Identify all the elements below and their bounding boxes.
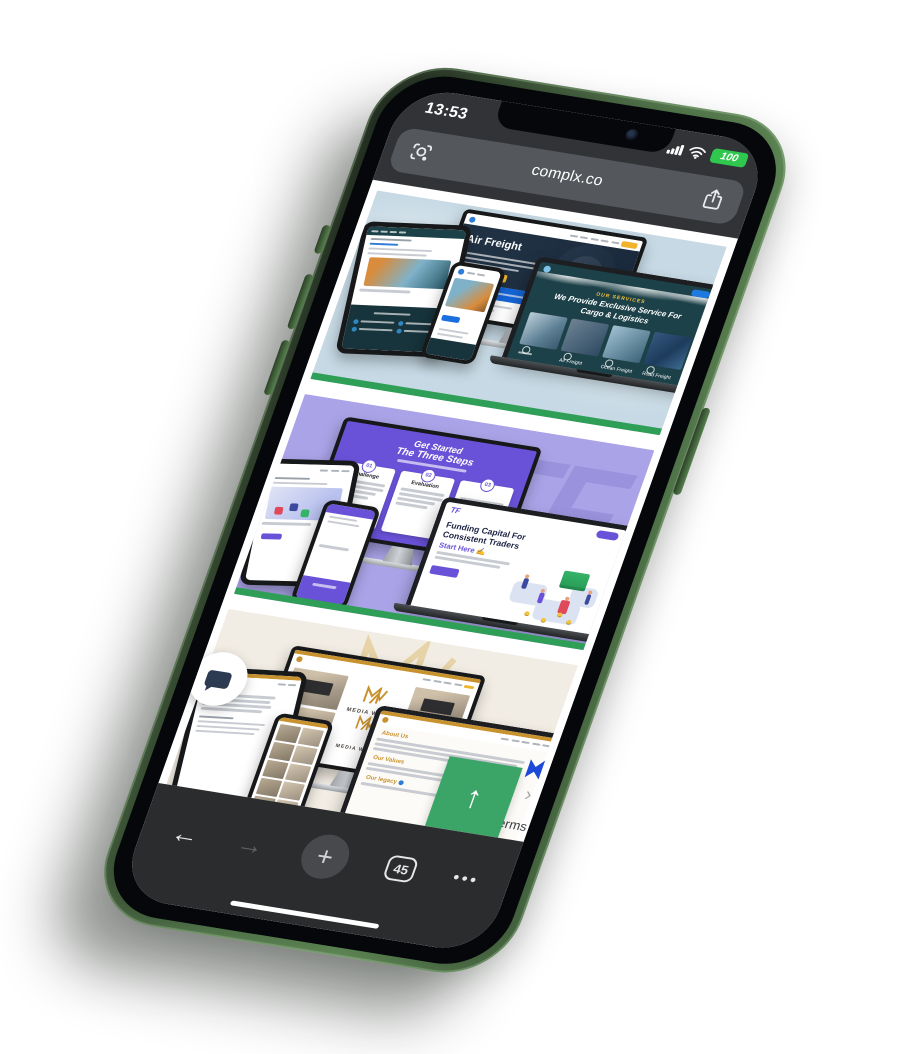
forward-button[interactable]: → [232, 828, 269, 862]
front-camera [624, 128, 640, 141]
share-icon[interactable] [692, 186, 734, 214]
stage: 13:53 100 [0, 0, 912, 1054]
cellular-signal-icon [666, 142, 685, 156]
web-content: Air Freight [158, 180, 738, 842]
portfolio-item-logistics[interactable]: Air Freight [310, 190, 726, 435]
portfolio-item-trading[interactable]: TF Get Started The Three Steps 01 Challe… [234, 394, 654, 650]
back-button[interactable]: ← [167, 817, 204, 851]
service-card: Ocean Freight [602, 325, 651, 363]
traders-illustration [496, 559, 608, 632]
menu-button[interactable]: ••• [450, 868, 482, 891]
mute-switch [313, 225, 331, 255]
service-card: Road Freight [643, 332, 692, 370]
bezel: 13:53 100 [97, 68, 793, 973]
cta-button [429, 565, 460, 578]
battery-icon: 100 [709, 148, 750, 168]
tf-logo: TF [449, 505, 462, 515]
new-tab-button[interactable]: + [295, 831, 356, 882]
phone-screen: 13:53 100 [118, 86, 771, 955]
laptop-mockup: OUR SERVICES We Provide Exclusive Servic… [499, 256, 723, 394]
home-indicator[interactable] [230, 900, 380, 929]
status-time: 13:53 [422, 100, 470, 124]
up-arrow-icon: ↑ [461, 781, 488, 814]
service-card: Air Freight [560, 319, 609, 357]
wifi-icon [687, 145, 708, 160]
tab-switcher-button[interactable]: 45 [382, 854, 419, 883]
globe-emoji-dot [398, 780, 405, 786]
chat-bubble-icon [204, 669, 233, 689]
iphone-mockup: 13:53 100 [85, 58, 804, 982]
service-card [519, 312, 568, 350]
